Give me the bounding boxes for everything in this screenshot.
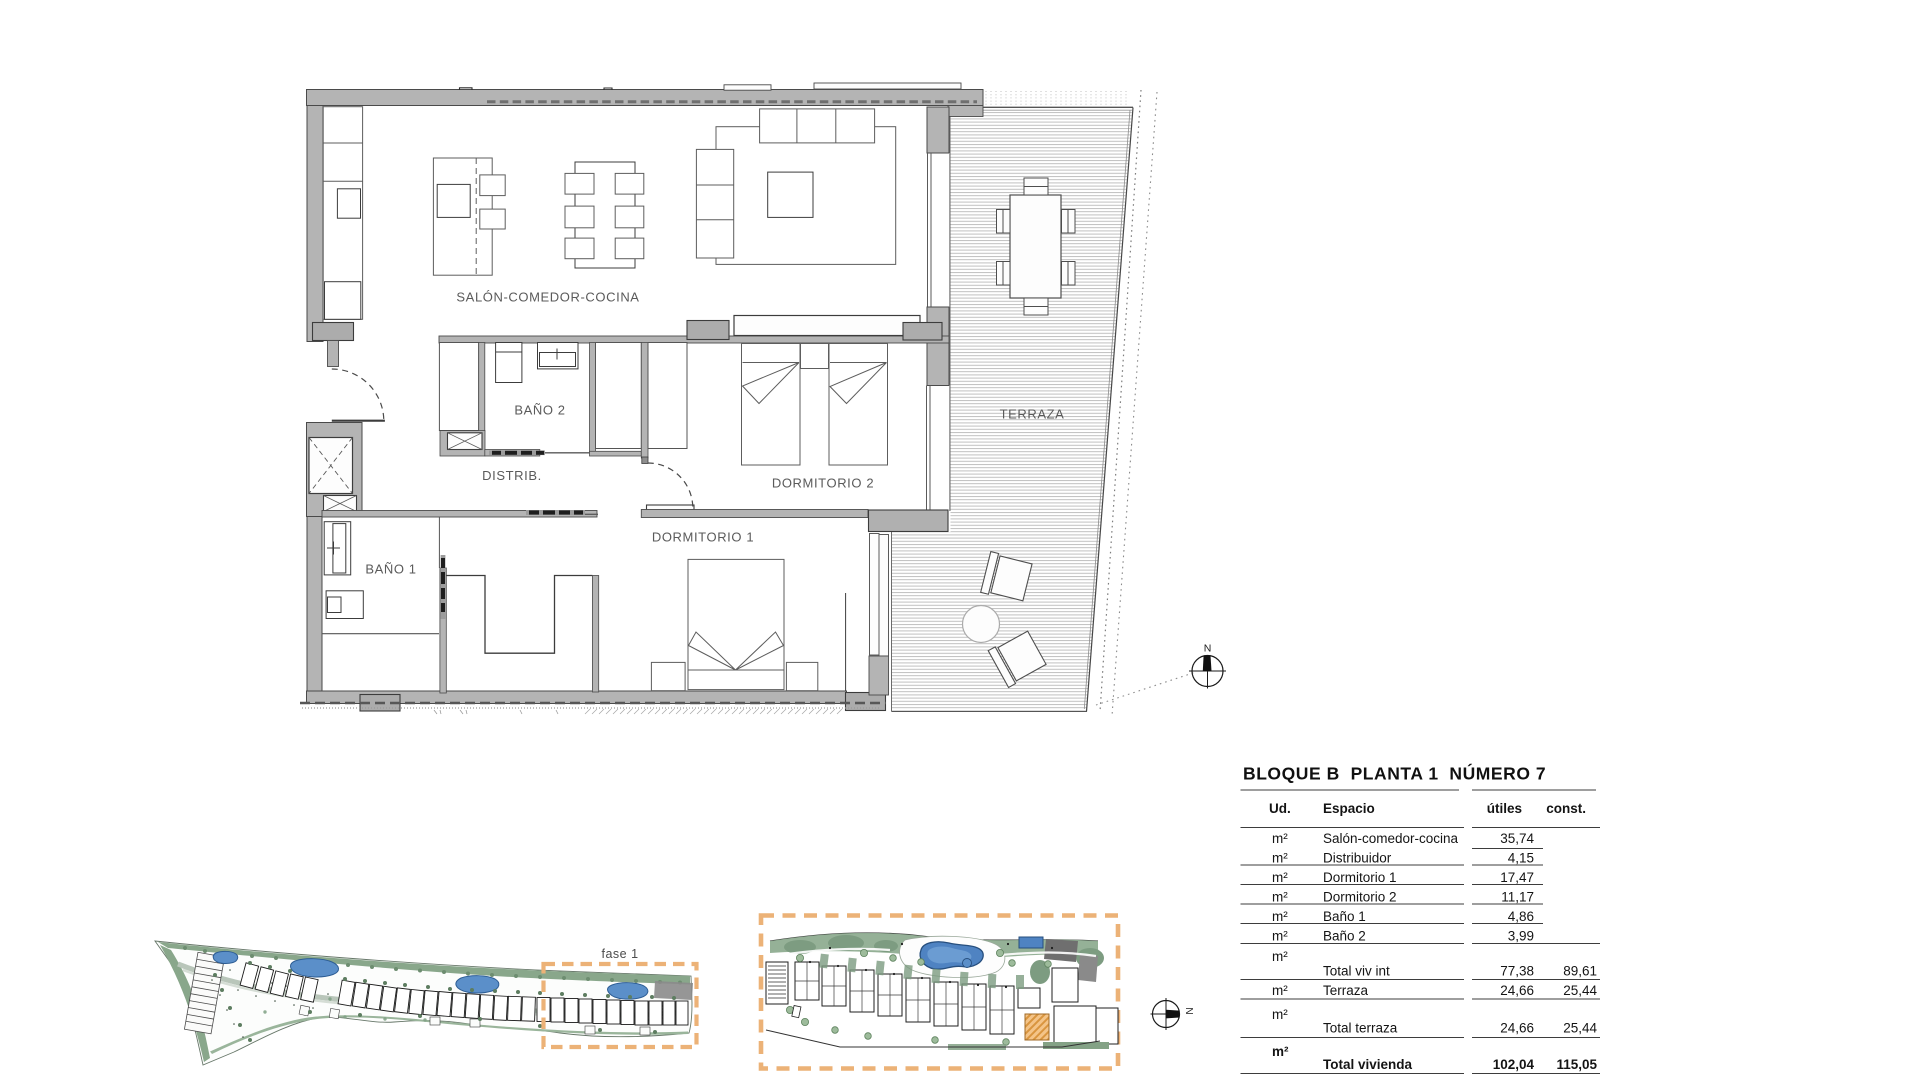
svg-text:Total viv int: Total viv int bbox=[1323, 964, 1390, 979]
svg-text:útiles: útiles bbox=[1487, 801, 1522, 816]
svg-text:fase 1: fase 1 bbox=[601, 947, 638, 961]
svg-text:17,47: 17,47 bbox=[1500, 870, 1534, 885]
svg-text:Total vivienda: Total vivienda bbox=[1323, 1057, 1413, 1072]
svg-text:Salón-comedor-cocina: Salón-comedor-cocina bbox=[1323, 831, 1459, 846]
svg-text:Dormitorio 1: Dormitorio 1 bbox=[1323, 870, 1397, 885]
svg-text:Baño 2: Baño 2 bbox=[1323, 929, 1366, 944]
svg-text:m²: m² bbox=[1272, 929, 1288, 944]
svg-text:m²: m² bbox=[1272, 1007, 1288, 1022]
svg-text:35,74: 35,74 bbox=[1500, 831, 1534, 846]
svg-text:24,66: 24,66 bbox=[1500, 1021, 1534, 1036]
svg-text:102,04: 102,04 bbox=[1493, 1057, 1535, 1072]
svg-text:3,99: 3,99 bbox=[1508, 929, 1534, 944]
svg-text:m²: m² bbox=[1272, 831, 1288, 846]
svg-text:77,38: 77,38 bbox=[1500, 964, 1534, 979]
svg-text:N: N bbox=[1183, 1007, 1194, 1014]
svg-text:m²: m² bbox=[1272, 949, 1288, 964]
svg-text:N: N bbox=[1204, 643, 1212, 655]
svg-text:BLOQUE B PLANTA 1 NÚMERO 7: BLOQUE B PLANTA 1 NÚMERO 7 bbox=[1243, 763, 1546, 784]
svg-text:Ud.: Ud. bbox=[1269, 801, 1291, 816]
svg-text:DORMITORIO 1: DORMITORIO 1 bbox=[652, 530, 754, 545]
svg-text:m²: m² bbox=[1272, 890, 1288, 905]
svg-text:Baño 1: Baño 1 bbox=[1323, 909, 1366, 924]
svg-text:Total terraza: Total terraza bbox=[1323, 1021, 1398, 1036]
svg-text:25,44: 25,44 bbox=[1563, 983, 1597, 998]
svg-text:DORMITORIO 2: DORMITORIO 2 bbox=[772, 476, 874, 491]
svg-text:BAÑO 2: BAÑO 2 bbox=[514, 403, 565, 418]
svg-text:11,17: 11,17 bbox=[1501, 890, 1534, 905]
svg-text:m²: m² bbox=[1272, 1044, 1289, 1059]
svg-text:25,44: 25,44 bbox=[1563, 1021, 1597, 1036]
svg-text:89,61: 89,61 bbox=[1563, 964, 1597, 979]
svg-text:24,66: 24,66 bbox=[1500, 983, 1534, 998]
svg-text:Distribuidor: Distribuidor bbox=[1323, 851, 1392, 866]
svg-text:Terraza: Terraza bbox=[1323, 983, 1369, 998]
svg-text:115,05: 115,05 bbox=[1556, 1057, 1597, 1072]
svg-text:m²: m² bbox=[1272, 909, 1288, 924]
svg-text:TERRAZA: TERRAZA bbox=[1000, 407, 1065, 422]
svg-text:m²: m² bbox=[1272, 983, 1288, 998]
svg-text:m²: m² bbox=[1272, 870, 1288, 885]
svg-text:Espacio: Espacio bbox=[1323, 801, 1375, 816]
svg-text:BAÑO 1: BAÑO 1 bbox=[365, 562, 416, 577]
svg-text:Dormitorio 2: Dormitorio 2 bbox=[1323, 890, 1397, 905]
svg-text:4,86: 4,86 bbox=[1508, 909, 1534, 924]
svg-text:m²: m² bbox=[1272, 851, 1288, 866]
svg-text:4,15: 4,15 bbox=[1508, 851, 1534, 866]
svg-text:const.: const. bbox=[1546, 801, 1586, 816]
svg-text:DISTRIB.: DISTRIB. bbox=[482, 468, 542, 483]
svg-text:SALÓN-COMEDOR-COCINA: SALÓN-COMEDOR-COCINA bbox=[456, 290, 639, 305]
